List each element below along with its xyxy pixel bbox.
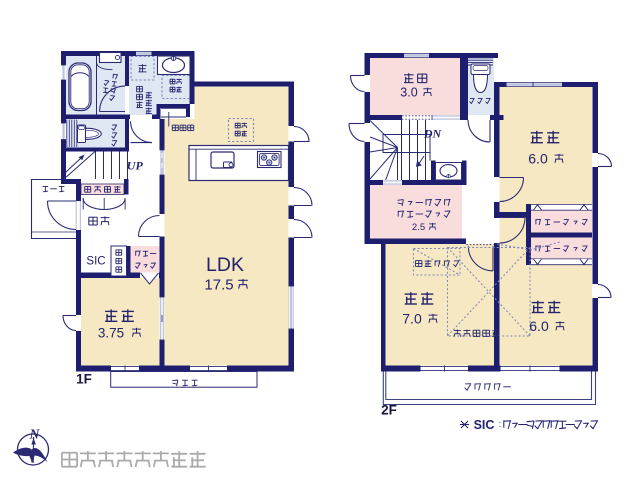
svg-text:2.5: 2.5 bbox=[412, 222, 425, 233]
svg-text:7.0: 7.0 bbox=[402, 311, 422, 327]
svg-text:N: N bbox=[29, 427, 41, 442]
svg-text:SIC: SIC bbox=[86, 256, 105, 268]
svg-text:UP: UP bbox=[127, 159, 144, 173]
svg-text:SIC: SIC bbox=[474, 418, 495, 432]
svg-text:DN: DN bbox=[423, 127, 443, 141]
svg-text:17.5: 17.5 bbox=[204, 277, 233, 294]
svg-text:6.0: 6.0 bbox=[528, 151, 548, 167]
svg-text:LDK: LDK bbox=[206, 254, 244, 276]
svg-text:6.0: 6.0 bbox=[529, 318, 549, 334]
svg-text:2F: 2F bbox=[381, 403, 397, 418]
svg-text:1F: 1F bbox=[76, 372, 92, 387]
svg-text:3.75: 3.75 bbox=[98, 326, 124, 341]
svg-text:3.0: 3.0 bbox=[400, 86, 417, 100]
